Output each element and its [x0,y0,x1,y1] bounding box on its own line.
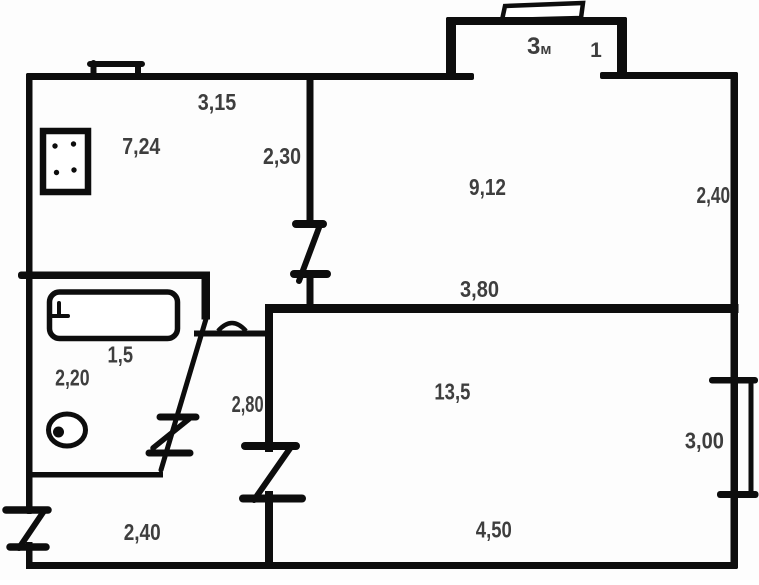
svg-text:2,40: 2,40 [124,519,161,545]
svg-text:7,24: 7,24 [122,133,160,159]
svg-text:2,20: 2,20 [55,365,90,391]
svg-text:13,5: 13,5 [434,379,470,405]
svg-text:2,80: 2,80 [232,391,264,417]
svg-text:3,15: 3,15 [198,89,237,115]
svg-text:1: 1 [590,39,602,62]
svg-text:2,40: 2,40 [697,182,731,208]
svg-text:1,5: 1,5 [108,342,134,368]
svg-text:9,12: 9,12 [469,174,506,200]
svg-text:3,00: 3,00 [685,428,724,454]
svg-text:4,50: 4,50 [476,517,512,543]
svg-text:2,30: 2,30 [263,143,301,169]
svg-text:3,80: 3,80 [460,276,499,302]
